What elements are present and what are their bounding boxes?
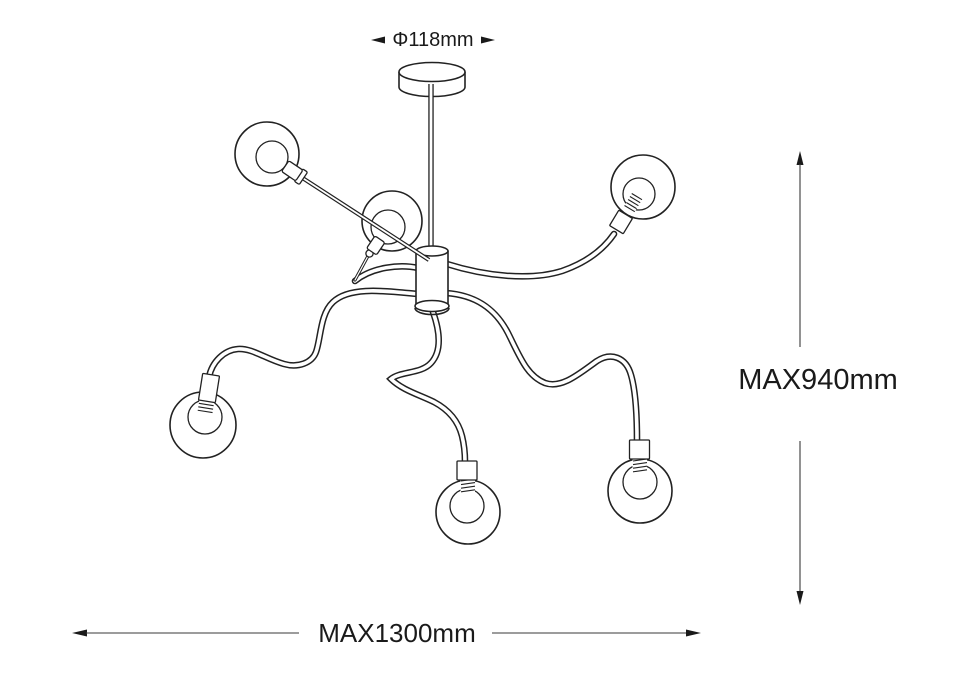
bulb-bottom-center (436, 461, 500, 544)
diagram-page: Φ118mm MAX940mm MAX1300mm (0, 0, 960, 677)
arm-center-top-tube (355, 266, 418, 281)
socket (198, 373, 219, 402)
arrow-left-icon (72, 630, 87, 637)
dimension-max-width: MAX1300mm (72, 618, 701, 648)
arrow-right-icon (481, 37, 495, 44)
socket (630, 440, 650, 459)
arrow-left-icon (371, 37, 385, 44)
bulb-upper-right (610, 155, 675, 234)
bulb-upper-left (235, 122, 308, 186)
chandelier-dimension-diagram: Φ118mm MAX940mm MAX1300mm (0, 0, 960, 677)
max-width-label: MAX1300mm (318, 618, 476, 648)
arm-bottom-center (391, 312, 465, 462)
arm-left (209, 291, 418, 377)
hub-bottom-cap (415, 301, 449, 312)
dimension-max-height: MAX940mm (738, 151, 898, 605)
arrow-up-icon (797, 151, 804, 165)
max-height-label: MAX940mm (738, 364, 898, 396)
canopy-diameter-label: Φ118mm (392, 29, 473, 51)
dimension-canopy-diameter: Φ118mm (371, 29, 495, 51)
arm-bottom-right (446, 293, 637, 441)
arm-upper-right (447, 234, 614, 276)
arrow-down-icon (797, 591, 804, 605)
bulb-left (170, 373, 236, 458)
canopy-top (399, 63, 465, 82)
bulb-bottom-right (608, 440, 672, 523)
socket (457, 461, 477, 480)
arrow-right-icon (686, 630, 701, 637)
